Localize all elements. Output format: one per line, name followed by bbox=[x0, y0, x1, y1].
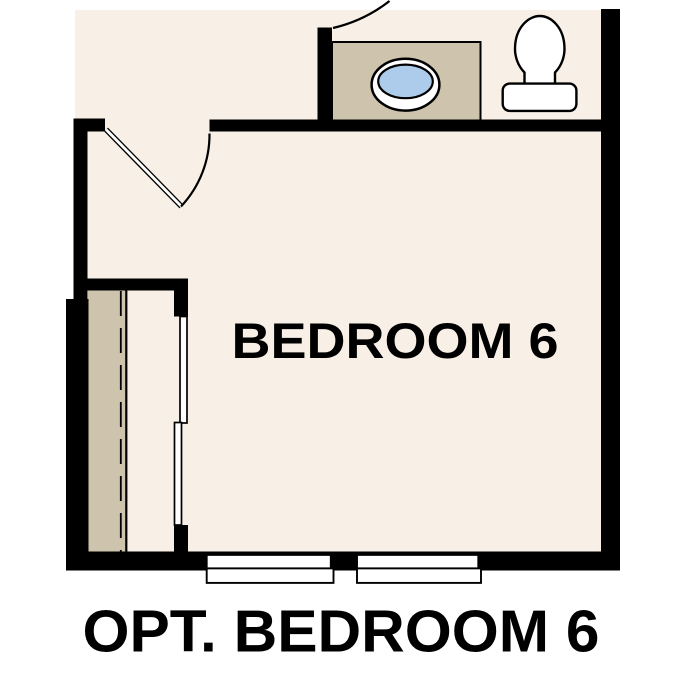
svg-text:BEDROOM 6: BEDROOM 6 bbox=[232, 313, 559, 369]
svg-text:OPT. BEDROOM 6: OPT. BEDROOM 6 bbox=[83, 599, 600, 665]
